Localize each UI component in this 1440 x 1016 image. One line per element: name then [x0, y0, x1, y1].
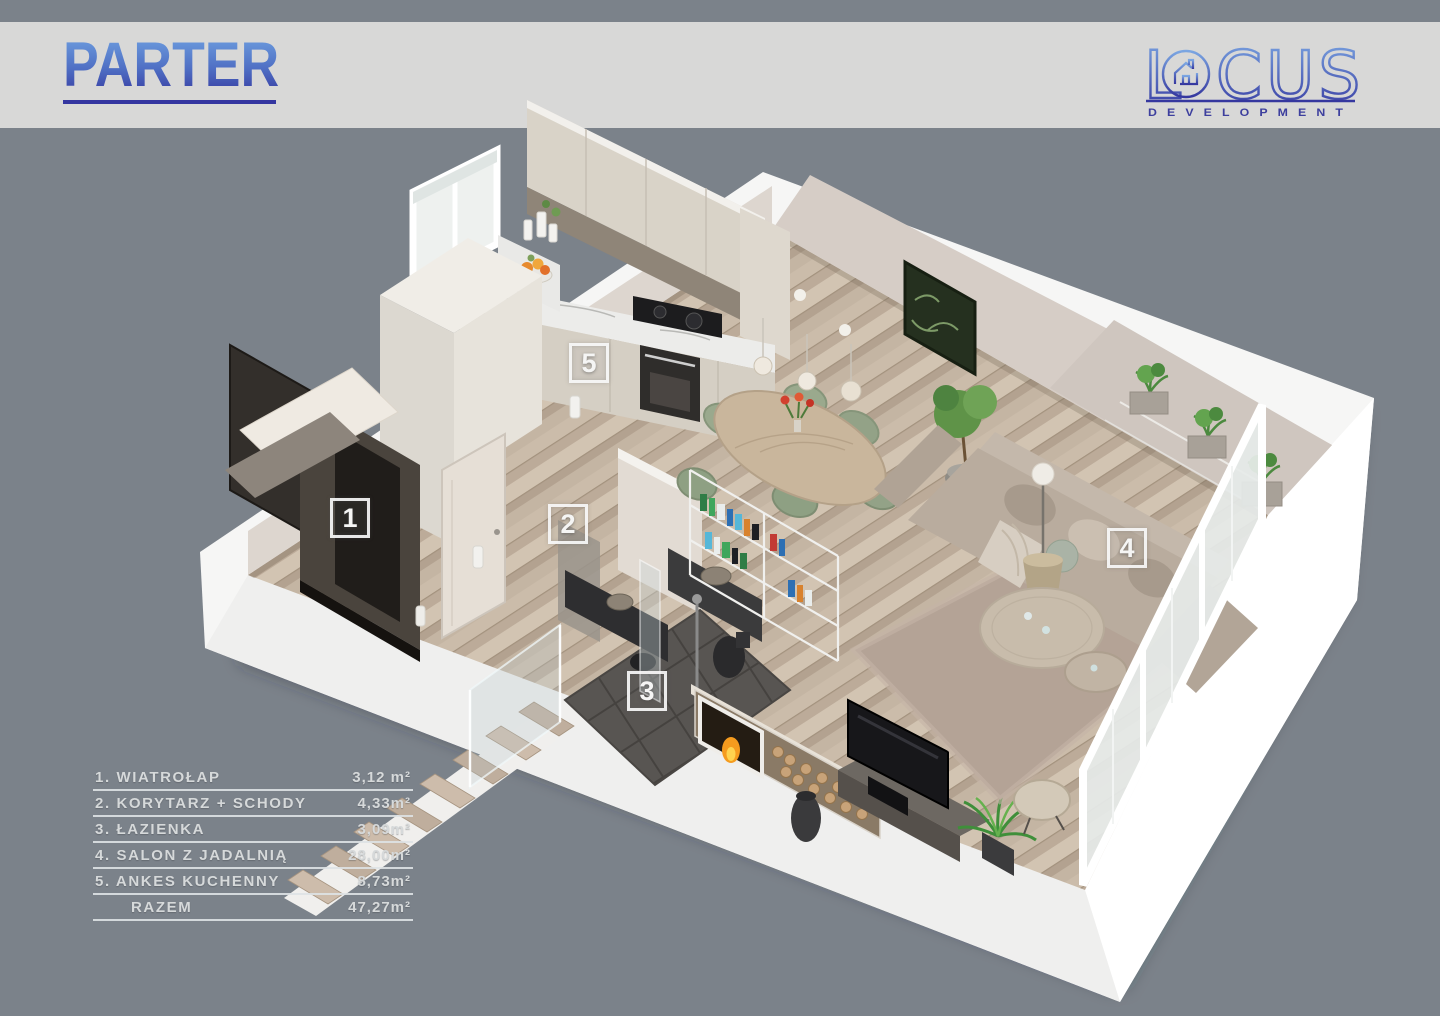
room-marker-1: 1	[330, 498, 370, 538]
legend-area: 47,27m²	[348, 900, 411, 916]
legend-area: 3,09m²	[357, 822, 411, 838]
interior-door	[442, 434, 505, 638]
legend-area: 28,00m²	[348, 848, 411, 864]
room-marker-4: 4	[1107, 528, 1147, 568]
legend-area: 4,33m²	[357, 796, 411, 812]
legend-label: RAZEM	[95, 900, 192, 916]
legend-label: 4. SALON Z JADALNIĄ	[95, 848, 288, 864]
legend-row: 1. WIATROŁAP 3,12 m²	[93, 770, 413, 791]
room-marker-2: 2	[548, 504, 588, 544]
legend-area: 3,12 m²	[352, 770, 411, 786]
legend-area: 8,73m²	[357, 874, 411, 890]
legend-row: 2. KORYTARZ + SCHODY 4,33m²	[93, 796, 413, 817]
legend-label: 2. KORYTARZ + SCHODY	[95, 796, 307, 812]
legend-row: 4. SALON Z JADALNIĄ 28,00m²	[93, 848, 413, 869]
room-marker-5: 5	[569, 343, 609, 383]
legend-label: 5. ANKES KUCHENNY	[95, 874, 280, 890]
legend-row: 5. ANKES KUCHENNY 8,73m²	[93, 874, 413, 895]
room-marker-3: 3	[627, 671, 667, 711]
area-legend: 1. WIATROŁAP 3,12 m² 2. KORYTARZ + SCHOD…	[93, 770, 413, 926]
legend-label: 3. ŁAZIENKA	[95, 822, 205, 838]
legend-row-total: RAZEM 47,27m²	[93, 900, 413, 921]
legend-label: 1. WIATROŁAP	[95, 770, 221, 786]
legend-row: 3. ŁAZIENKA 3,09m²	[93, 822, 413, 843]
page: PARTER L CUS DEVELOPMENT	[0, 0, 1440, 1016]
